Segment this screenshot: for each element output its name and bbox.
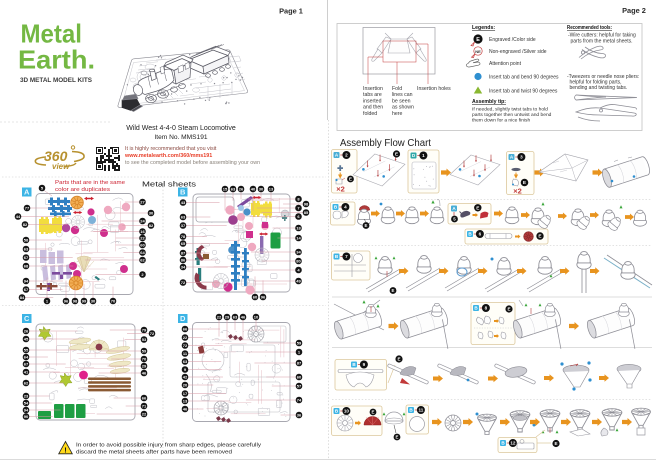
- svg-text:22: 22: [183, 335, 188, 340]
- svg-text:40: 40: [251, 186, 256, 191]
- svg-text:bending and twisting tabs.: bending and twisting tabs.: [570, 85, 628, 91]
- svg-text:lines can: lines can: [392, 92, 413, 98]
- svg-text:2: 2: [345, 153, 348, 158]
- svg-text:Insertion holes: Insertion holes: [417, 86, 451, 92]
- svg-text:70: 70: [142, 356, 147, 361]
- svg-text:99: 99: [82, 298, 87, 303]
- svg-text:13: 13: [269, 186, 274, 191]
- svg-text:×2: ×2: [336, 185, 345, 194]
- svg-text:×2: ×2: [513, 186, 522, 195]
- svg-text:22: 22: [142, 411, 147, 416]
- svg-text:26: 26: [239, 186, 244, 191]
- svg-text:67: 67: [24, 255, 29, 260]
- svg-text:63: 63: [183, 359, 188, 364]
- svg-text:71: 71: [142, 403, 147, 408]
- svg-text:Earth.: Earth.: [18, 45, 95, 75]
- svg-text:53: 53: [142, 337, 147, 342]
- svg-text:77: 77: [25, 205, 30, 210]
- svg-text:98: 98: [73, 298, 78, 303]
- svg-text:inserted: inserted: [363, 98, 382, 104]
- svg-text:parts from the metal sheets.: parts from the metal sheets.: [571, 39, 633, 45]
- svg-text:6: 6: [479, 232, 482, 237]
- svg-text:30: 30: [91, 298, 96, 303]
- svg-text:96: 96: [64, 298, 69, 303]
- svg-text:70: 70: [111, 298, 116, 303]
- svg-text:Assembly tip:: Assembly tip:: [472, 99, 506, 105]
- svg-text:18: 18: [296, 225, 301, 230]
- svg-text:34: 34: [296, 249, 301, 254]
- svg-text:NE: NE: [475, 49, 481, 54]
- svg-text:11: 11: [418, 408, 423, 413]
- svg-text:34: 34: [181, 264, 186, 269]
- svg-text:41: 41: [24, 369, 29, 374]
- svg-text:15: 15: [223, 186, 228, 191]
- svg-text:22: 22: [217, 314, 222, 319]
- svg-text:44: 44: [16, 214, 21, 219]
- svg-text:parts together then untwist an: parts together then untwist and bend: [472, 112, 552, 118]
- svg-text:13: 13: [183, 398, 188, 403]
- svg-text:29: 29: [225, 314, 230, 319]
- svg-text:Non-engraved /Silver side: Non-engraved /Silver side: [489, 49, 547, 55]
- svg-text:68: 68: [24, 263, 29, 268]
- svg-text:Attention point: Attention point: [489, 61, 522, 67]
- svg-text:46: 46: [241, 314, 246, 319]
- svg-text:10: 10: [254, 314, 259, 319]
- svg-text:12: 12: [510, 441, 516, 446]
- svg-text:Fold: Fold: [392, 86, 402, 92]
- svg-text:49: 49: [296, 278, 301, 283]
- svg-text:16: 16: [140, 229, 145, 234]
- svg-text:Insert tab and bend 90 degrees: Insert tab and bend 90 degrees: [489, 75, 559, 81]
- svg-text:E: E: [365, 223, 368, 228]
- svg-text:24: 24: [140, 218, 145, 223]
- svg-text:74: 74: [297, 397, 302, 402]
- svg-text:55: 55: [24, 347, 29, 352]
- svg-text:62: 62: [140, 257, 145, 262]
- svg-text:84: 84: [20, 295, 25, 300]
- svg-text:30: 30: [259, 186, 264, 191]
- svg-text:62: 62: [24, 380, 29, 385]
- svg-text:72: 72: [183, 343, 188, 348]
- svg-text:60: 60: [253, 294, 258, 299]
- svg-text:82: 82: [149, 223, 154, 228]
- svg-text:42: 42: [183, 374, 188, 379]
- svg-text:It is highly recommended that: It is highly recommended that you visit: [125, 146, 217, 152]
- svg-text:7: 7: [345, 254, 348, 259]
- svg-text:63: 63: [231, 186, 236, 191]
- svg-text:23: 23: [24, 393, 29, 398]
- svg-text:66: 66: [142, 395, 147, 400]
- svg-text:and then: and then: [363, 105, 383, 111]
- svg-text:79: 79: [142, 327, 147, 332]
- svg-text:Assembly Flow Chart: Assembly Flow Chart: [340, 138, 431, 149]
- svg-text:85: 85: [304, 210, 309, 215]
- svg-text:87: 87: [181, 250, 186, 255]
- svg-text:67: 67: [24, 361, 29, 366]
- svg-text:E: E: [392, 288, 395, 293]
- svg-text:94: 94: [24, 278, 29, 283]
- svg-text:color are duplicates: color are duplicates: [55, 187, 110, 193]
- svg-text:98: 98: [304, 201, 309, 206]
- svg-text:63: 63: [24, 246, 29, 251]
- svg-text:4: 4: [344, 205, 347, 210]
- svg-text:72: 72: [150, 331, 155, 336]
- svg-text:E: E: [476, 37, 480, 43]
- svg-text:36: 36: [297, 412, 302, 417]
- svg-text:C: C: [24, 314, 30, 323]
- svg-text:14: 14: [296, 235, 301, 240]
- svg-text:20: 20: [183, 382, 188, 387]
- svg-text:E: E: [396, 435, 399, 440]
- svg-text:10: 10: [344, 409, 350, 414]
- svg-text:59: 59: [142, 348, 147, 353]
- svg-text:17: 17: [183, 391, 188, 396]
- svg-text:65: 65: [181, 241, 186, 246]
- svg-text:Recommended tools:: Recommended tools:: [567, 25, 612, 31]
- svg-text:46: 46: [183, 406, 188, 411]
- svg-text:66: 66: [183, 326, 188, 331]
- svg-text:Engraved /Color side: Engraved /Color side: [489, 37, 536, 43]
- svg-text:64: 64: [24, 354, 29, 359]
- svg-text:here: here: [392, 111, 402, 117]
- svg-text:E: E: [538, 234, 541, 239]
- svg-text:www.metalearth.com/360/mms191: www.metalearth.com/360/mms191: [124, 153, 212, 159]
- svg-text:3: 3: [520, 155, 523, 160]
- svg-text:86: 86: [181, 257, 186, 262]
- svg-text:Metal sheets: Metal sheets: [142, 182, 197, 189]
- svg-text:58: 58: [24, 237, 29, 242]
- svg-text:54: 54: [24, 400, 29, 405]
- svg-text:Legends:: Legends:: [472, 25, 495, 31]
- svg-text:Parts that are in the same: Parts that are in the same: [55, 180, 126, 186]
- svg-text:63: 63: [181, 214, 186, 219]
- svg-text:96: 96: [261, 294, 266, 299]
- svg-text:as shown: as shown: [392, 105, 414, 111]
- svg-text:them down for a nice finish: them down for a nice finish: [472, 118, 530, 124]
- svg-text:37: 37: [181, 223, 186, 228]
- svg-text:Wild West 4-4-0 Steam Locomoti: Wild West 4-4-0 Steam Locomotive: [126, 125, 236, 132]
- svg-text:46: 46: [142, 370, 147, 375]
- svg-text:E: E: [397, 357, 400, 362]
- svg-text:A: A: [24, 188, 30, 197]
- svg-text:Insertion: Insertion: [363, 86, 383, 92]
- svg-text:B: B: [180, 188, 186, 197]
- svg-text:Insert tab and twist 90 degree: Insert tab and twist 90 degrees: [489, 89, 558, 95]
- svg-text:E: E: [476, 205, 479, 210]
- svg-text:30: 30: [149, 210, 154, 215]
- svg-text:!: !: [64, 445, 67, 454]
- svg-text:tabs are: tabs are: [363, 92, 382, 98]
- svg-text:78: 78: [181, 234, 186, 239]
- svg-text:94: 94: [24, 407, 29, 412]
- svg-text:8: 8: [485, 306, 488, 311]
- svg-text:82: 82: [23, 222, 28, 227]
- svg-text:60: 60: [297, 374, 302, 379]
- svg-text:Page 1: Page 1: [279, 7, 303, 16]
- svg-text:26: 26: [24, 328, 29, 333]
- svg-text:1: 1: [422, 153, 425, 158]
- svg-text:Item No. MMS191: Item No. MMS191: [154, 134, 207, 141]
- svg-text:3D METAL MODEL KITS: 3D METAL MODEL KITS: [20, 77, 93, 84]
- svg-text:45: 45: [24, 336, 29, 341]
- svg-text:67: 67: [24, 287, 29, 292]
- svg-text:E: E: [507, 307, 510, 312]
- svg-text:27: 27: [140, 199, 145, 204]
- svg-text:90: 90: [24, 414, 29, 419]
- svg-text:87: 87: [297, 360, 302, 365]
- svg-text:D: D: [180, 314, 186, 323]
- svg-text:folded: folded: [363, 111, 377, 117]
- svg-text:63: 63: [233, 314, 238, 319]
- svg-text:E: E: [372, 410, 375, 415]
- svg-text:57: 57: [297, 383, 302, 388]
- svg-text:43: 43: [181, 200, 186, 205]
- svg-text:9: 9: [363, 362, 366, 367]
- svg-text:29: 29: [142, 363, 147, 368]
- svg-text:In order to avoid possible inj: In order to avoid possible injury from s…: [76, 443, 261, 449]
- svg-text:E: E: [554, 441, 557, 446]
- svg-text:Page 2: Page 2: [622, 6, 646, 15]
- svg-text:E: E: [349, 177, 352, 182]
- svg-text:22: 22: [140, 235, 145, 240]
- svg-text:to see the completed model bef: to see the completed model before assemb…: [125, 160, 260, 166]
- svg-text:60: 60: [140, 242, 145, 247]
- svg-text:59: 59: [297, 340, 302, 345]
- svg-text:64: 64: [140, 250, 145, 255]
- svg-text:E: E: [395, 152, 398, 157]
- svg-text:80: 80: [296, 258, 301, 263]
- svg-text:discard the metal sheets after: discard the metal sheets after parts hav…: [76, 450, 232, 456]
- svg-text:If needed, slightly twist tabs: If needed, slightly twist tabs to hold: [472, 107, 548, 113]
- svg-text:72: 72: [181, 280, 186, 285]
- svg-text:be seen: be seen: [392, 98, 411, 104]
